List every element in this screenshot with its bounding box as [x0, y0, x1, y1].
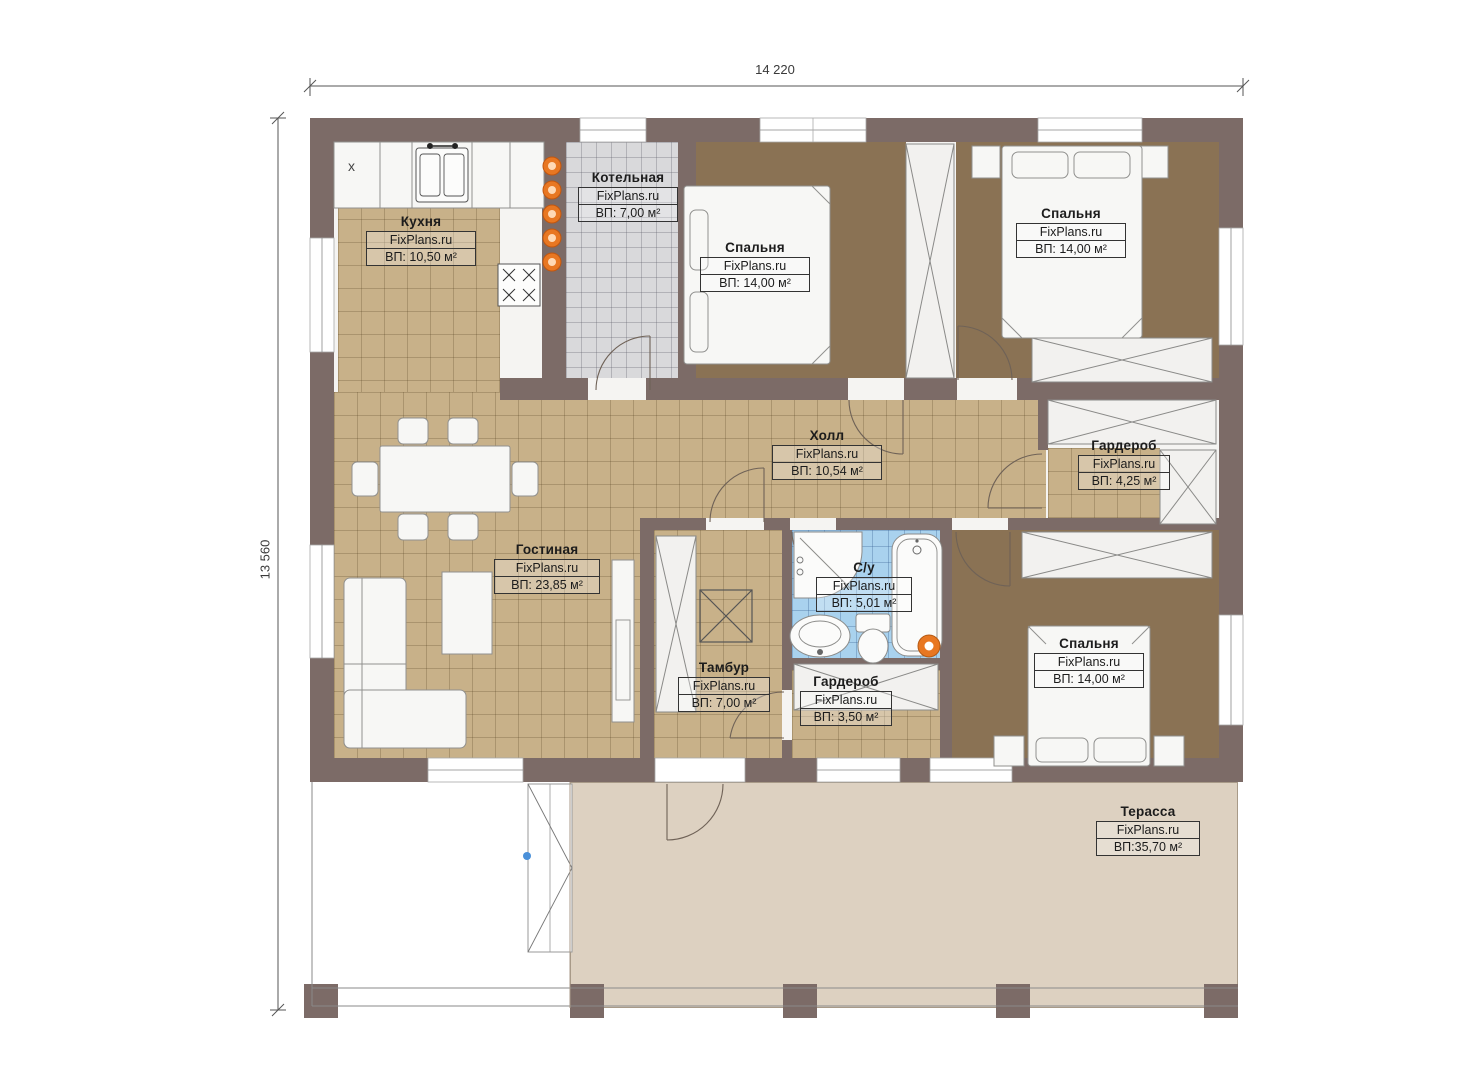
- room-info-box: FixPlans.ru ВП: 14,00 м²: [700, 257, 810, 292]
- room-label-wardrobe2: Гардероб FixPlans.ru ВП: 3,50 м²: [800, 674, 892, 726]
- room-label-bathroom: С/у FixPlans.ru ВП: 5,01 м²: [816, 560, 912, 612]
- room-area: ВП: 7,00 м²: [579, 205, 677, 221]
- brand-label: FixPlans.ru: [773, 446, 881, 463]
- room-info-box: FixPlans.ru ВП: 3,50 м²: [800, 691, 892, 726]
- coffee-table: [442, 572, 492, 654]
- room-name: Холл: [772, 428, 882, 443]
- window: [1219, 228, 1243, 725]
- brand-label: FixPlans.ru: [701, 258, 809, 275]
- window: [580, 118, 1142, 142]
- room-label-boiler: Котельная FixPlans.ru ВП: 7,00 м²: [578, 170, 678, 222]
- room-area: ВП: 7,00 м²: [679, 695, 769, 711]
- room-label-kitchen: Кухня FixPlans.ru ВП: 10,50 м²: [366, 214, 476, 266]
- room-info-box: FixPlans.ru ВП: 7,00 м²: [578, 187, 678, 222]
- room-name: Тамбур: [678, 660, 770, 675]
- room-name: Спальня: [1034, 636, 1144, 651]
- bathroom-sink: [790, 615, 850, 657]
- brand-label: FixPlans.ru: [1079, 456, 1169, 473]
- room-area: ВП: 5,01 м²: [817, 595, 911, 611]
- water-heater: [918, 635, 940, 657]
- brand-label: FixPlans.ru: [579, 188, 677, 205]
- kitchen-sink: [416, 143, 468, 202]
- room-label-vestibule: Тамбур FixPlans.ru ВП: 7,00 м²: [678, 660, 770, 712]
- room-label-hall: Холл FixPlans.ru ВП: 10,54 м²: [772, 428, 882, 480]
- plan-overlay: [0, 0, 1474, 1080]
- room-label-terrace: Терасса FixPlans.ru ВП:35,70 м²: [1096, 804, 1200, 856]
- room-name: Котельная: [578, 170, 678, 185]
- boiler-units: [543, 157, 561, 271]
- room-area: ВП: 14,00 м²: [1017, 241, 1125, 257]
- room-area: ВП: 14,00 м²: [701, 275, 809, 291]
- room-area: ВП: 14,00 м²: [1035, 671, 1143, 687]
- brand-label: FixPlans.ru: [1035, 654, 1143, 671]
- brand-label: FixPlans.ru: [1017, 224, 1125, 241]
- room-name: Кухня: [366, 214, 476, 229]
- dimension-height-label: 13 560: [258, 500, 273, 620]
- room-name: Гардероб: [1078, 438, 1170, 453]
- room-info-box: FixPlans.ru ВП: 14,00 м²: [1016, 223, 1126, 258]
- room-label-living: Гостиная FixPlans.ru ВП: 23,85 м²: [494, 542, 600, 594]
- brand-label: FixPlans.ru: [1097, 822, 1199, 839]
- brand-label: FixPlans.ru: [817, 578, 911, 595]
- brand-label: FixPlans.ru: [495, 560, 599, 577]
- room-name: Спальня: [1016, 206, 1126, 221]
- terrace-steps: [523, 784, 572, 952]
- room-label-bedroom2: Спальня FixPlans.ru ВП: 14,00 м²: [1016, 206, 1126, 258]
- brand-label: FixPlans.ru: [801, 692, 891, 709]
- room-name: Гардероб: [800, 674, 892, 689]
- room-label-wardrobe1: Гардероб FixPlans.ru ВП: 4,25 м²: [1078, 438, 1170, 490]
- room-info-box: FixPlans.ru ВП: 10,54 м²: [772, 445, 882, 480]
- room-name: Терасса: [1096, 804, 1200, 819]
- room-info-box: FixPlans.ru ВП: 23,85 м²: [494, 559, 600, 594]
- room-name: Гостиная: [494, 542, 600, 557]
- room-area: ВП: 4,25 м²: [1079, 473, 1169, 489]
- window: [310, 238, 334, 658]
- toilet: [856, 614, 890, 663]
- room-name: С/у: [816, 560, 912, 575]
- brand-label: FixPlans.ru: [367, 232, 475, 249]
- dimension-line-top: [304, 78, 1249, 96]
- room-label-bedroom3: Спальня FixPlans.ru ВП: 14,00 м²: [1034, 636, 1144, 688]
- stove-hob: [498, 264, 540, 306]
- room-info-box: FixPlans.ru ВП: 10,50 м²: [366, 231, 476, 266]
- floor-plan-canvas: 14 220 13 560 x Кухня FixPlans.ru ВП: 10…: [0, 0, 1474, 1080]
- room-info-box: FixPlans.ru ВП: 4,25 м²: [1078, 455, 1170, 490]
- dining-table: [352, 418, 538, 540]
- tv-console: [612, 560, 634, 722]
- floor-hatch: [700, 590, 752, 642]
- room-info-box: FixPlans.ru ВП: 7,00 м²: [678, 677, 770, 712]
- kitchen-vent-marker: x: [348, 158, 355, 174]
- room-info-box: FixPlans.ru ВП: 5,01 м²: [816, 577, 912, 612]
- room-label-bedroom1: Спальня FixPlans.ru ВП: 14,00 м²: [700, 240, 810, 292]
- brand-label: FixPlans.ru: [679, 678, 769, 695]
- window: [428, 758, 1012, 782]
- room-info-box: FixPlans.ru ВП: 14,00 м²: [1034, 653, 1144, 688]
- room-area: ВП:35,70 м²: [1097, 839, 1199, 855]
- room-area: ВП: 3,50 м²: [801, 709, 891, 725]
- room-info-box: FixPlans.ru ВП:35,70 м²: [1096, 821, 1200, 856]
- room-area: ВП: 10,50 м²: [367, 249, 475, 265]
- room-area: ВП: 10,54 м²: [773, 463, 881, 479]
- room-name: Спальня: [700, 240, 810, 255]
- room-area: ВП: 23,85 м²: [495, 577, 599, 593]
- dimension-width-label: 14 220: [690, 62, 860, 77]
